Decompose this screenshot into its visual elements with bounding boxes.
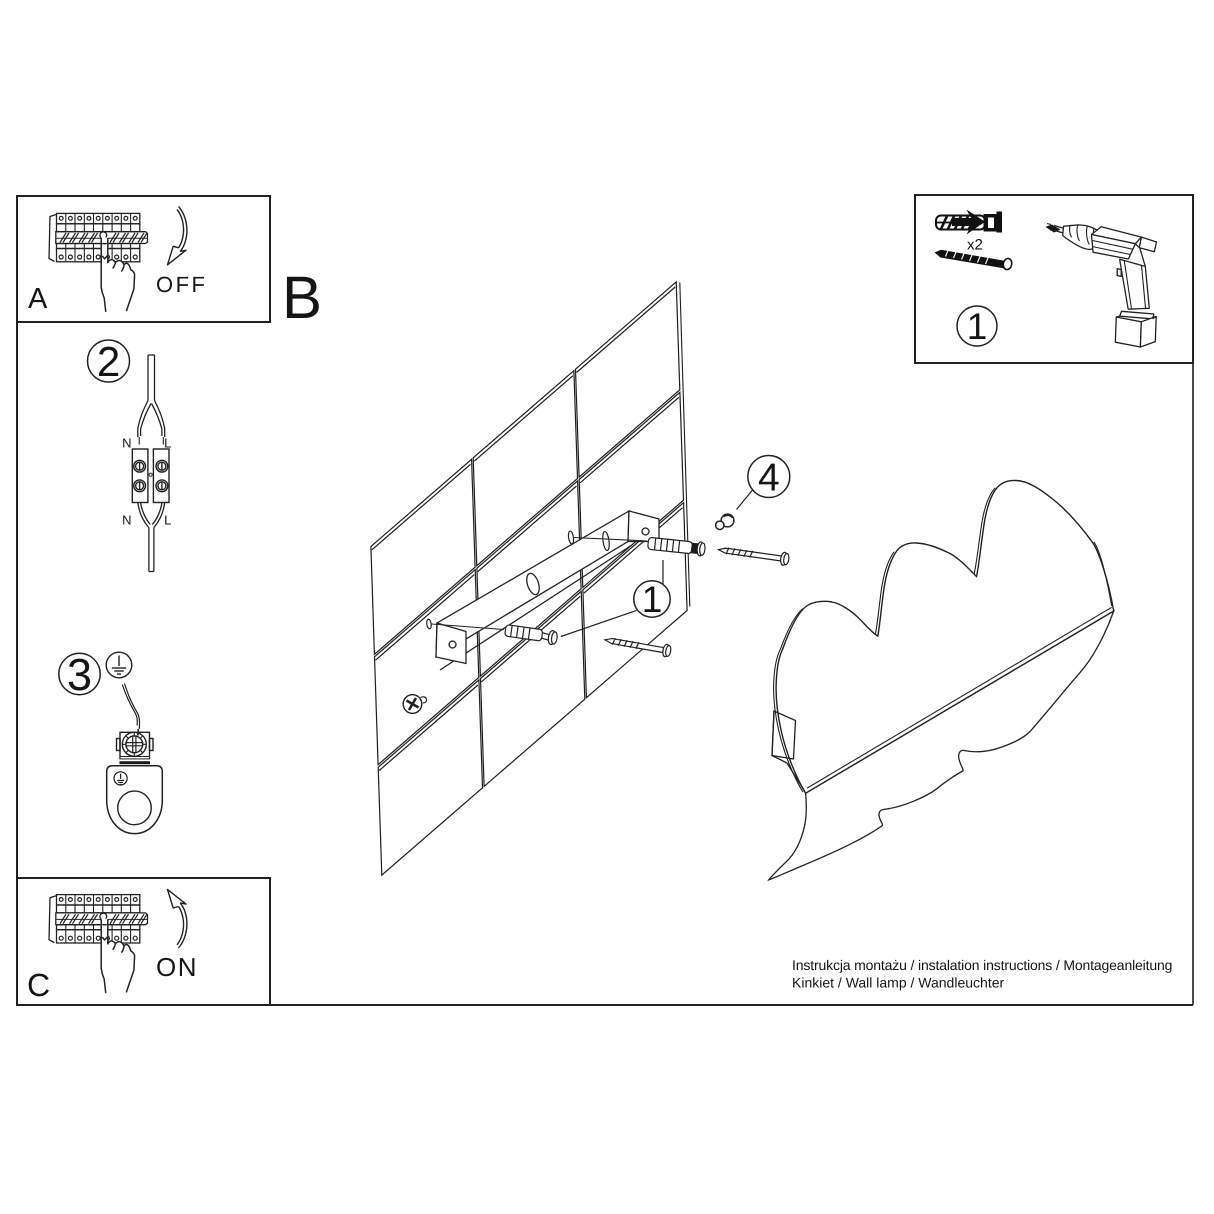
svg-text:1: 1 <box>642 579 663 620</box>
svg-text:N: N <box>122 436 131 451</box>
svg-text:3: 3 <box>67 649 92 700</box>
svg-text:N: N <box>122 513 131 528</box>
svg-text:C: C <box>27 967 50 1003</box>
svg-text:4: 4 <box>758 457 780 500</box>
svg-text:L: L <box>164 513 171 528</box>
svg-text:1: 1 <box>967 306 988 347</box>
svg-text:Kinkiet / Wall lamp / Wandleuc: Kinkiet / Wall lamp / Wandleuchter <box>792 975 1004 991</box>
svg-text:OFF: OFF <box>156 272 208 297</box>
svg-text:2: 2 <box>97 338 120 385</box>
svg-text:x2: x2 <box>967 237 983 254</box>
svg-text:Instrukcja montażu / instalati: Instrukcja montażu / instalation instruc… <box>792 957 1172 973</box>
svg-text:L: L <box>164 436 171 451</box>
svg-text:ON: ON <box>156 952 198 982</box>
svg-text:B: B <box>282 264 322 331</box>
svg-text:A: A <box>28 283 48 315</box>
